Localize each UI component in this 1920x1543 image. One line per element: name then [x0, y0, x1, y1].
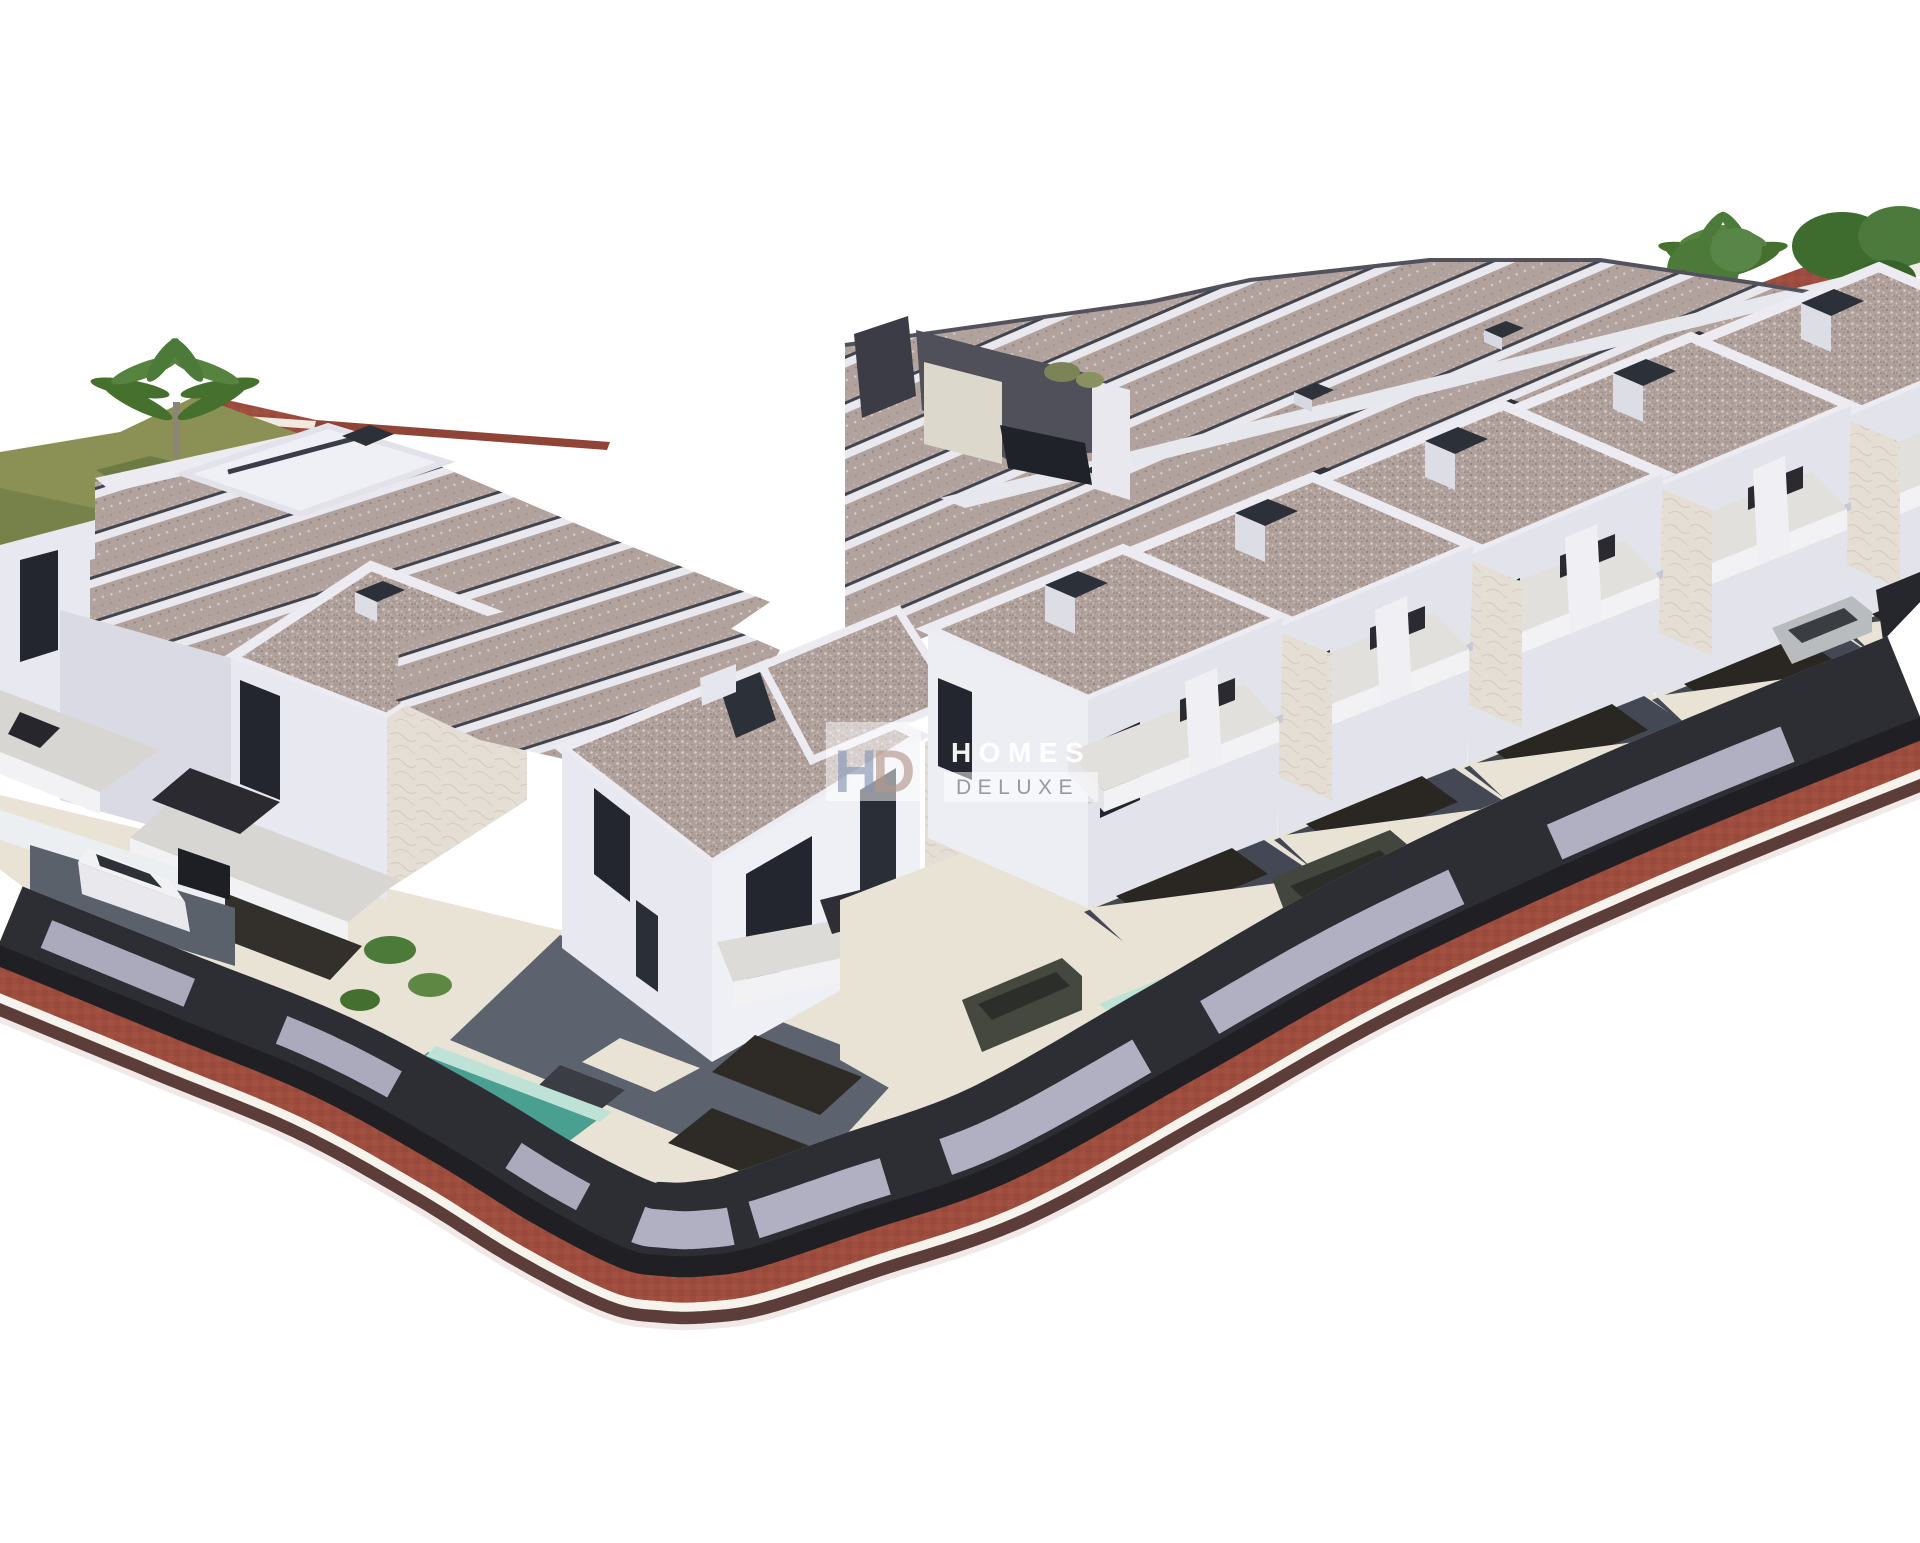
- svg-text:DELUXE: DELUXE: [956, 776, 1079, 799]
- svg-text:D: D: [872, 738, 915, 805]
- svg-text:HOMES: HOMES: [951, 737, 1091, 768]
- svg-text:H: H: [834, 738, 877, 805]
